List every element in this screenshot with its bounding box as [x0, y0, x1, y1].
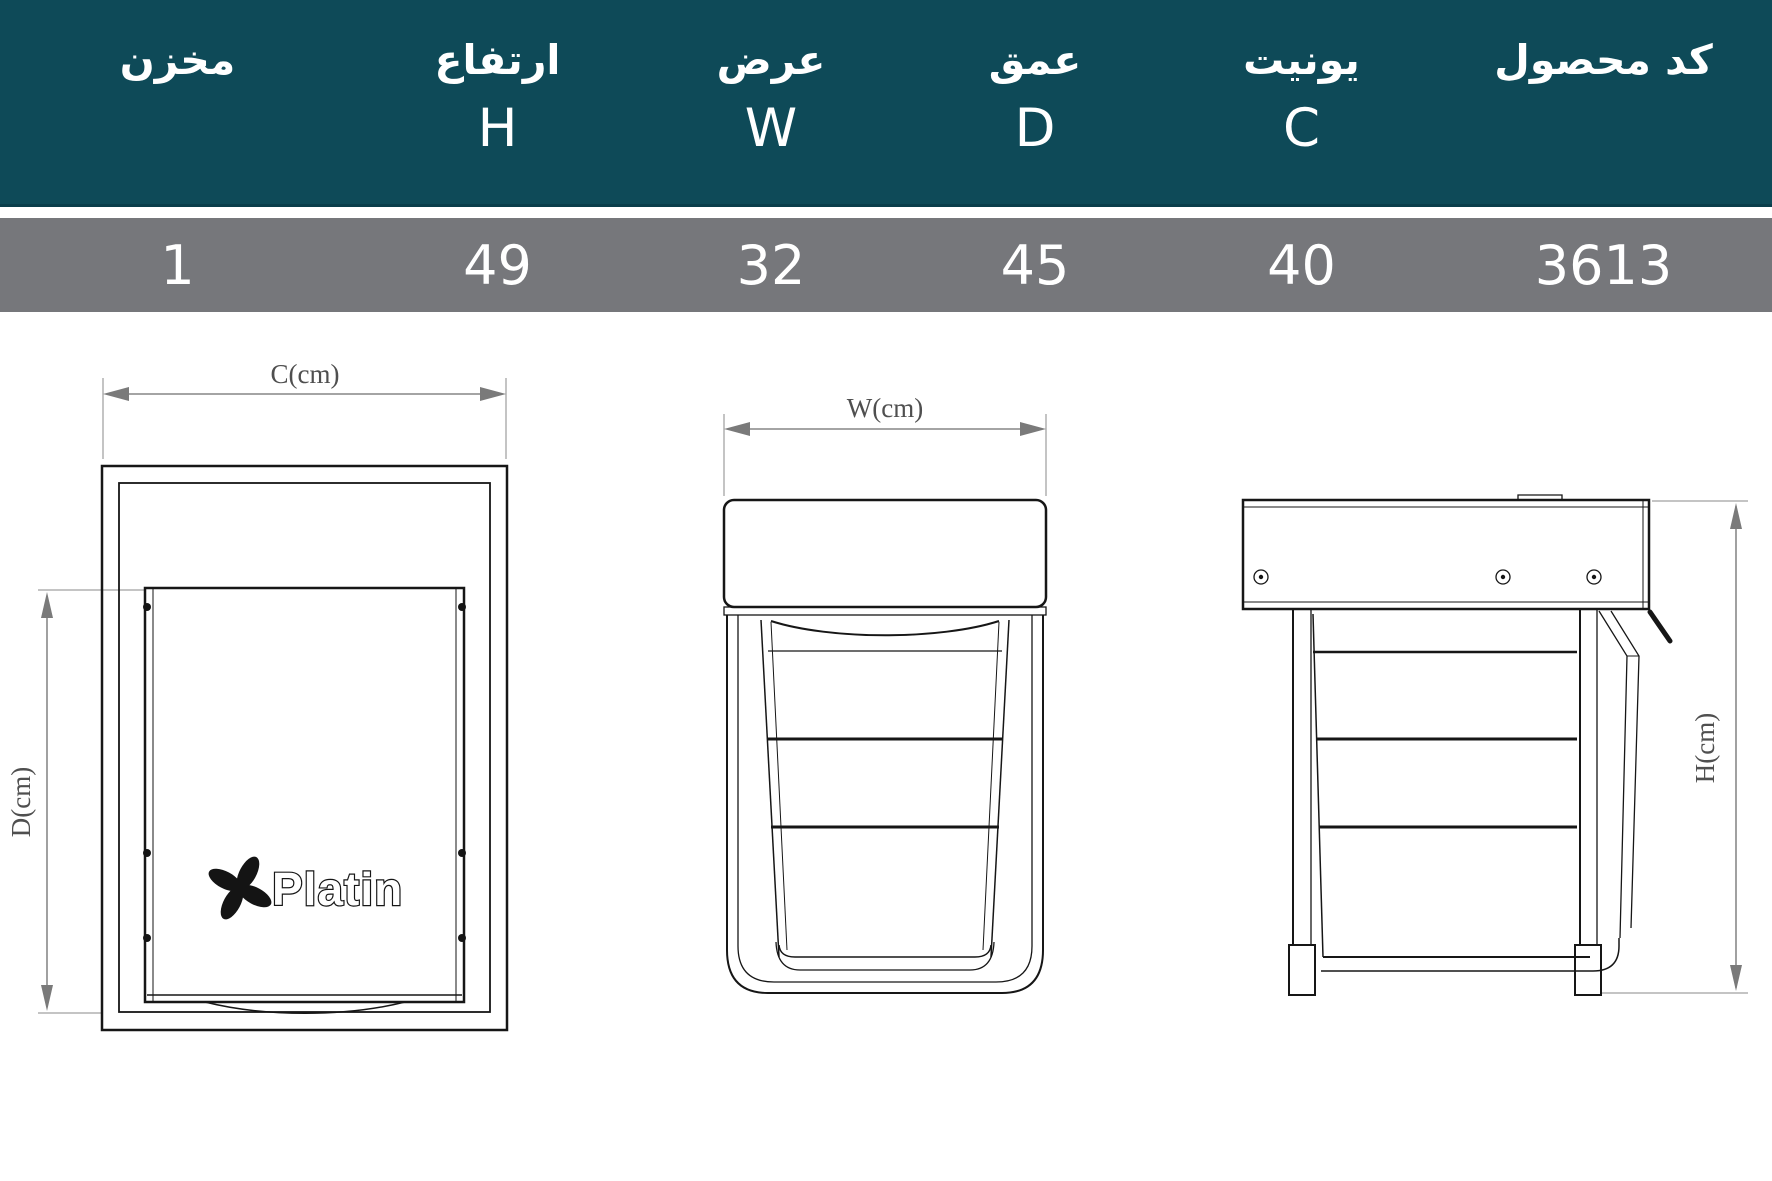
bucket-handle-curve: [771, 621, 999, 635]
mounting-plate: [1243, 495, 1649, 609]
front-view-drawing: C(cm) D(cm): [6, 359, 507, 1030]
bin-bucket-side: [1313, 614, 1619, 971]
cabinet-frame: [102, 466, 507, 1030]
unit-front-view-drawing: W(cm): [724, 393, 1046, 993]
d-dimension: D(cm): [6, 590, 146, 1013]
platin-logo: Platin: [205, 853, 403, 923]
c-dimension: C(cm): [103, 359, 506, 459]
product-spec-sheet: مخزن ارتفاع H عرض W عمق D یونیت C کد محص…: [0, 0, 1772, 1181]
w-dimension: W(cm): [724, 393, 1046, 496]
screw-icons: [1254, 570, 1601, 584]
bin-bucket-front: [761, 620, 1009, 970]
release-handle: [1650, 612, 1670, 641]
c-dimension-label: C(cm): [271, 359, 340, 389]
door-front-panel: [724, 500, 1046, 615]
w-dimension-label: W(cm): [847, 393, 923, 423]
d-dimension-label: D(cm): [6, 767, 36, 837]
door-panel: [143, 588, 466, 1013]
h-dimension-label: H(cm): [1690, 713, 1720, 783]
support-legs: [1289, 609, 1601, 995]
h-dimension: H(cm): [1602, 501, 1748, 993]
platin-logo-text: Platin: [272, 863, 403, 915]
platin-flower-icon: [205, 853, 275, 923]
side-view-drawing: H(cm): [1243, 495, 1748, 995]
slide-rail: [1599, 611, 1670, 938]
mount-frame: [727, 615, 1043, 993]
technical-drawings: C(cm) D(cm): [0, 0, 1772, 1181]
